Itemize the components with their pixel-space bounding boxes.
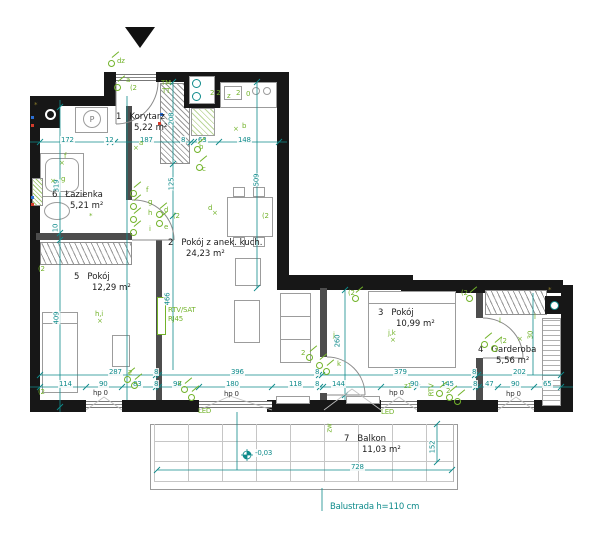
annotation-label: hp 0 <box>93 389 108 397</box>
dimension-label: 90 <box>510 380 521 388</box>
annotation-label: hp 0 <box>224 390 239 398</box>
dimension-label: 202 <box>512 368 527 376</box>
electrical-point-icon <box>108 60 115 67</box>
electrical-label: (2 <box>38 388 45 396</box>
annotation-label: hp 0 <box>389 389 404 397</box>
dimension-label: 152 <box>428 441 436 454</box>
room-label-2: 2Pokój z anek. kuch.24,23 m² <box>168 238 262 259</box>
electrical-point-icon <box>194 146 201 153</box>
electrical-label: h <box>148 209 152 217</box>
annotation-label: * <box>34 101 37 109</box>
electrical-point-icon <box>188 394 195 401</box>
electrical-label: b <box>242 122 246 130</box>
electrical-label: k <box>337 360 341 368</box>
electrical-label: × <box>233 125 239 133</box>
room-label-6: 6Łazienka5,21 m² <box>52 190 103 211</box>
electrical-label: z <box>178 379 181 387</box>
annotation-label: hp 0 <box>506 390 521 398</box>
dimension-label: 728 <box>350 463 365 471</box>
electrical-label: i <box>149 225 151 233</box>
dimension-label: 8 <box>153 380 159 388</box>
electrical-label: * <box>89 212 92 220</box>
electrical-label: LED <box>381 408 394 416</box>
room-label-4: 4Garderoba5,56 m² <box>478 345 536 366</box>
dimension-label: 208 <box>167 113 175 126</box>
room-label-7: 7Balkon11,03 m² <box>344 434 401 455</box>
electrical-point-icon <box>323 368 330 375</box>
electrical-label: (2 <box>130 84 137 92</box>
dimension-label: 172 <box>60 136 75 144</box>
electrical-label: × <box>517 335 523 343</box>
electrical-label: 2 <box>301 349 305 357</box>
electrical-label: dz <box>117 57 125 65</box>
electrical-label: 2 <box>236 89 240 97</box>
dimension-label: 148 <box>237 136 252 144</box>
electrical-label: a <box>126 76 130 84</box>
electrical-label: × <box>50 177 56 185</box>
electrical-point-icon <box>130 203 137 210</box>
dimension-label: 125 <box>167 178 175 191</box>
electrical-point-icon <box>131 382 138 389</box>
dimension-label: 396 <box>230 368 245 376</box>
electrical-point-icon <box>130 216 137 223</box>
electrical-label: (2 <box>38 265 45 273</box>
dimension-label: 10 <box>51 224 59 233</box>
dimension-label: 8 <box>471 368 477 376</box>
electrical-point-icon <box>454 398 461 405</box>
electrical-point-icon <box>491 345 498 352</box>
annotation-label: Balustrada h=110 cm <box>330 503 419 511</box>
electrical-label: (2 <box>173 212 180 220</box>
electrical-label: l <box>499 317 501 325</box>
dimension-label: 379 <box>393 368 408 376</box>
dimension-label: 65 <box>542 380 553 388</box>
dimension-label: 90 <box>98 380 109 388</box>
dimension-label: 47 <box>484 380 495 388</box>
electrical-point-icon <box>124 376 131 383</box>
electrical-label: × <box>133 144 139 152</box>
electrical-label: g <box>148 198 152 206</box>
floor-plan: P 17212187863148287839683798202114908389… <box>0 0 600 545</box>
electrical-label: TM <box>161 79 171 87</box>
electrical-label: 2 2 <box>210 89 221 97</box>
electrical-label: l <box>534 313 536 321</box>
dimension-label: 118 <box>288 380 303 388</box>
dimension-label: 180 <box>225 380 240 388</box>
electrical-point-icon <box>481 341 488 348</box>
electrical-label: a <box>139 139 143 147</box>
dimension-label: 8 <box>180 136 186 144</box>
electrical-label: j <box>333 331 335 339</box>
electrical-point-icon <box>130 190 137 197</box>
electrical-point-icon <box>316 362 323 369</box>
dimension-label: 287 <box>108 368 123 376</box>
electrical-point-icon <box>130 229 137 236</box>
annotation-label: * <box>548 286 551 294</box>
electrical-label: × <box>97 317 103 325</box>
electrical-point-icon <box>196 164 203 171</box>
dimension-label: 12 <box>104 136 115 144</box>
dimension-label: 466 <box>163 293 171 306</box>
electrical-label: 0 <box>246 90 250 98</box>
dimension-label: 8 <box>314 368 320 376</box>
electrical-label: z <box>227 92 230 100</box>
electrical-point-icon <box>181 386 188 393</box>
electrical-point-icon <box>446 394 453 401</box>
north-arrow-icon <box>125 27 155 48</box>
electrical-label: RJ45 <box>168 315 183 323</box>
dimension-label: 8 <box>314 380 320 388</box>
electrical-point-icon <box>114 84 121 91</box>
electrical-label: RTV <box>427 384 435 397</box>
electrical-label: RTV/SAT <box>168 306 195 314</box>
electrical-label: 30 <box>526 331 534 340</box>
electrical-point-icon <box>156 220 163 227</box>
dimension-label: 8 <box>153 368 159 376</box>
electrical-label: × <box>59 159 65 167</box>
electrical-label: TT <box>162 87 170 95</box>
electrical-point-icon <box>436 390 443 397</box>
electrical-label: z1 <box>404 382 412 390</box>
dimension-label: 509 <box>252 174 260 187</box>
window-flags <box>86 389 534 410</box>
room-label-5: 5Pokój12,29 m² <box>74 272 131 293</box>
electrical-label: e <box>164 223 168 231</box>
dimension-label: 8 <box>472 380 478 388</box>
electrical-point-icon <box>352 295 359 302</box>
electrical-label: zw <box>326 424 334 433</box>
electrical-label: g <box>61 175 65 183</box>
electrical-label: × <box>390 336 396 344</box>
dimension-lines <box>30 82 573 511</box>
electrical-label: × <box>212 209 218 217</box>
dimension-label: 409 <box>52 312 60 325</box>
dimension-label: 114 <box>58 380 73 388</box>
electrical-label: LED <box>198 407 211 415</box>
dimension-label: -0,03 <box>254 449 273 457</box>
electrical-label: f <box>146 186 148 194</box>
electrical-point-icon <box>466 295 473 302</box>
electrical-label: (2 <box>262 212 269 220</box>
electrical-point-icon <box>306 354 313 361</box>
room-label-3: 3Pokój10,99 m² <box>378 308 435 329</box>
dimension-label: 144 <box>331 380 346 388</box>
room-label-1: 1Korytarz5,22 m² <box>116 112 167 133</box>
